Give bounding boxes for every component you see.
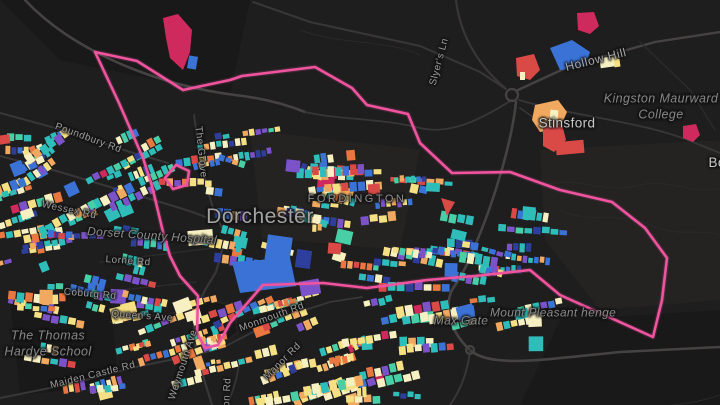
building-cluster-south-east [341,294,454,388]
landmark-building [520,72,525,80]
landmark-building [328,242,342,254]
landmark-building [516,54,540,80]
road [456,0,505,88]
map-canvas[interactable]: Slyer's LnHollow HillPoundbury RdThe Gro… [0,0,720,405]
landmark-building [550,110,559,121]
landmark-building [368,183,381,194]
landuse-patch [540,140,720,310]
landmark-building [577,12,599,34]
landmark-building [550,40,590,70]
building-cluster-far-left-s [0,176,73,273]
road [253,2,506,89]
building-cluster-left-chips [0,133,31,154]
landmark-building [285,159,300,172]
landmark-building [613,59,620,68]
building-cluster-bottom-mid [303,375,421,405]
landmark-building [187,229,213,246]
landmark-building [555,140,584,155]
road [640,42,715,130]
landuse-patch [0,0,250,95]
landmark-building [264,234,293,264]
map-render-surface [0,0,720,405]
road [450,350,470,405]
landmark-building [295,249,312,269]
road [100,248,214,262]
